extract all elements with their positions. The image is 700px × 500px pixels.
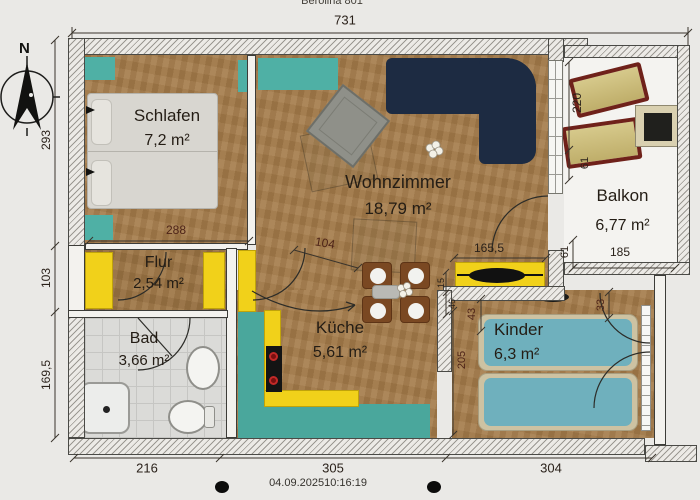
wall-bottom-right <box>645 445 697 462</box>
dim-kinder-top-left: 43 <box>466 308 478 320</box>
balcony-table-top <box>644 113 672 141</box>
wall-left-upper <box>68 38 85 246</box>
shower-drain <box>103 406 110 413</box>
kids-bed-mattress <box>484 378 632 426</box>
wohnzimmer-teal-rug <box>258 58 338 90</box>
bed-divider <box>88 151 217 152</box>
room-label-balkon: Balkon 6,77 m² <box>570 186 675 235</box>
room-area: 2,54 m² <box>116 276 201 293</box>
room-label-kinder: Kinder 6,3 m² <box>482 320 594 364</box>
room-area: 7,2 m² <box>102 132 232 150</box>
bathroom-sink <box>186 346 220 390</box>
kueche-tall-cabinet <box>238 250 256 312</box>
balcony-wall-bottom <box>564 262 690 275</box>
room-area: 3,66 m² <box>104 353 184 370</box>
compass-north-label: N <box>19 40 30 57</box>
schlafen-teal-accent-bottom <box>85 215 113 240</box>
wall-left-flur <box>68 245 85 311</box>
timestamp: 04.09.202510:16:19 <box>269 477 367 489</box>
balcony-wall-right <box>677 45 690 275</box>
dim-balkon-gap: 61 <box>559 246 571 258</box>
burner <box>269 352 278 361</box>
schlafen-teal-accent-top <box>85 57 115 80</box>
room-area: 6,3 m² <box>494 346 594 364</box>
chair-cushion <box>370 268 386 284</box>
wall-balcony-stub-top <box>548 38 564 62</box>
wall-kinder-right <box>654 275 666 445</box>
room-name: Balkon <box>570 186 675 205</box>
flur-wardrobe-right <box>203 252 225 309</box>
stove <box>266 346 282 392</box>
wall-top <box>68 38 588 55</box>
dim-balkon-inner: 61 <box>579 157 591 169</box>
wall-schlafen-wohnzimmer <box>247 55 256 245</box>
room-name: Küche <box>285 318 395 337</box>
kids-bed-bottom <box>478 373 638 431</box>
toilet-bowl <box>168 400 208 434</box>
dim-wall-small-b: 46 <box>447 299 457 309</box>
room-label-wohnzimmer: Wohnzimmer 18,79 m² <box>318 172 478 218</box>
room-label-flur: Flur 2,54 m² <box>116 254 201 293</box>
dim-wall-small-a: 15 <box>436 278 446 288</box>
document-title: Berolina 801 <box>252 0 412 7</box>
wall-left-lower <box>68 311 85 438</box>
balcony-wall-top <box>564 45 690 58</box>
dining-table-item <box>372 285 400 299</box>
floor-plan: Berolina 801 <box>0 0 700 500</box>
kueche-counter-horizontal <box>264 390 359 407</box>
pillow <box>91 160 112 206</box>
dining-chair <box>400 262 430 289</box>
toilet-tank <box>204 406 215 428</box>
dim-sideboard: 165,5 <box>474 241 504 255</box>
chair-cushion <box>370 303 386 319</box>
wall-wohnzimmer-south <box>443 286 565 301</box>
balcony-window <box>548 60 563 194</box>
dim-schlafen-width: 288 <box>166 223 186 237</box>
shower-tray <box>80 382 130 434</box>
dim-left-bottom: 169,5 <box>39 360 53 390</box>
room-name: Schlafen <box>102 106 232 125</box>
room-area: 18,79 m² <box>318 199 478 218</box>
room-label-schlafen: Schlafen 7,2 m² <box>102 106 232 150</box>
dim-bottom-left: 216 <box>136 461 158 476</box>
room-area: 5,61 m² <box>285 344 395 362</box>
dim-left-top: 293 <box>39 130 53 150</box>
wall-schlafen-flur <box>85 243 248 250</box>
dim-left-mid: 103 <box>39 268 53 288</box>
chair-cushion <box>408 268 424 284</box>
balcony-table <box>635 105 679 147</box>
kueche-floor-teal-bottom <box>238 404 430 438</box>
room-name: Flur <box>116 254 201 272</box>
room-name: Wohnzimmer <box>318 172 478 192</box>
room-name: Bad <box>104 330 184 348</box>
north-arrow-icon <box>1 56 60 136</box>
corner-sofa-vertical <box>479 58 536 164</box>
dim-balkon-width: 185 <box>610 245 630 259</box>
room-name: Kinder <box>494 320 594 339</box>
radiator <box>641 305 651 431</box>
room-label-bad: Bad 3,66 m² <box>104 330 184 370</box>
dim-bottom-center: 305 <box>322 461 344 476</box>
window-frame-line <box>555 61 556 193</box>
dim-kinder-top-right: 33 <box>595 299 607 311</box>
room-area: 6,77 m² <box>570 217 675 235</box>
chair-cushion <box>408 303 424 319</box>
room-label-kueche: Küche 5,61 m² <box>285 318 395 362</box>
wall-bottom <box>68 438 645 455</box>
dim-bottom-right: 304 <box>540 461 562 476</box>
wall-flur-bad <box>68 310 228 318</box>
dim-kinder-height: 205 <box>456 351 468 369</box>
wall-bad-kueche <box>226 248 237 438</box>
flur-wardrobe-left <box>85 252 113 309</box>
burner <box>269 376 278 385</box>
tv-screen <box>469 268 525 283</box>
dining-chair <box>400 296 430 323</box>
coffee-table-inner <box>319 97 378 156</box>
dim-total-width: 731 <box>334 13 356 28</box>
dim-balkon-height: 220 <box>570 93 584 113</box>
